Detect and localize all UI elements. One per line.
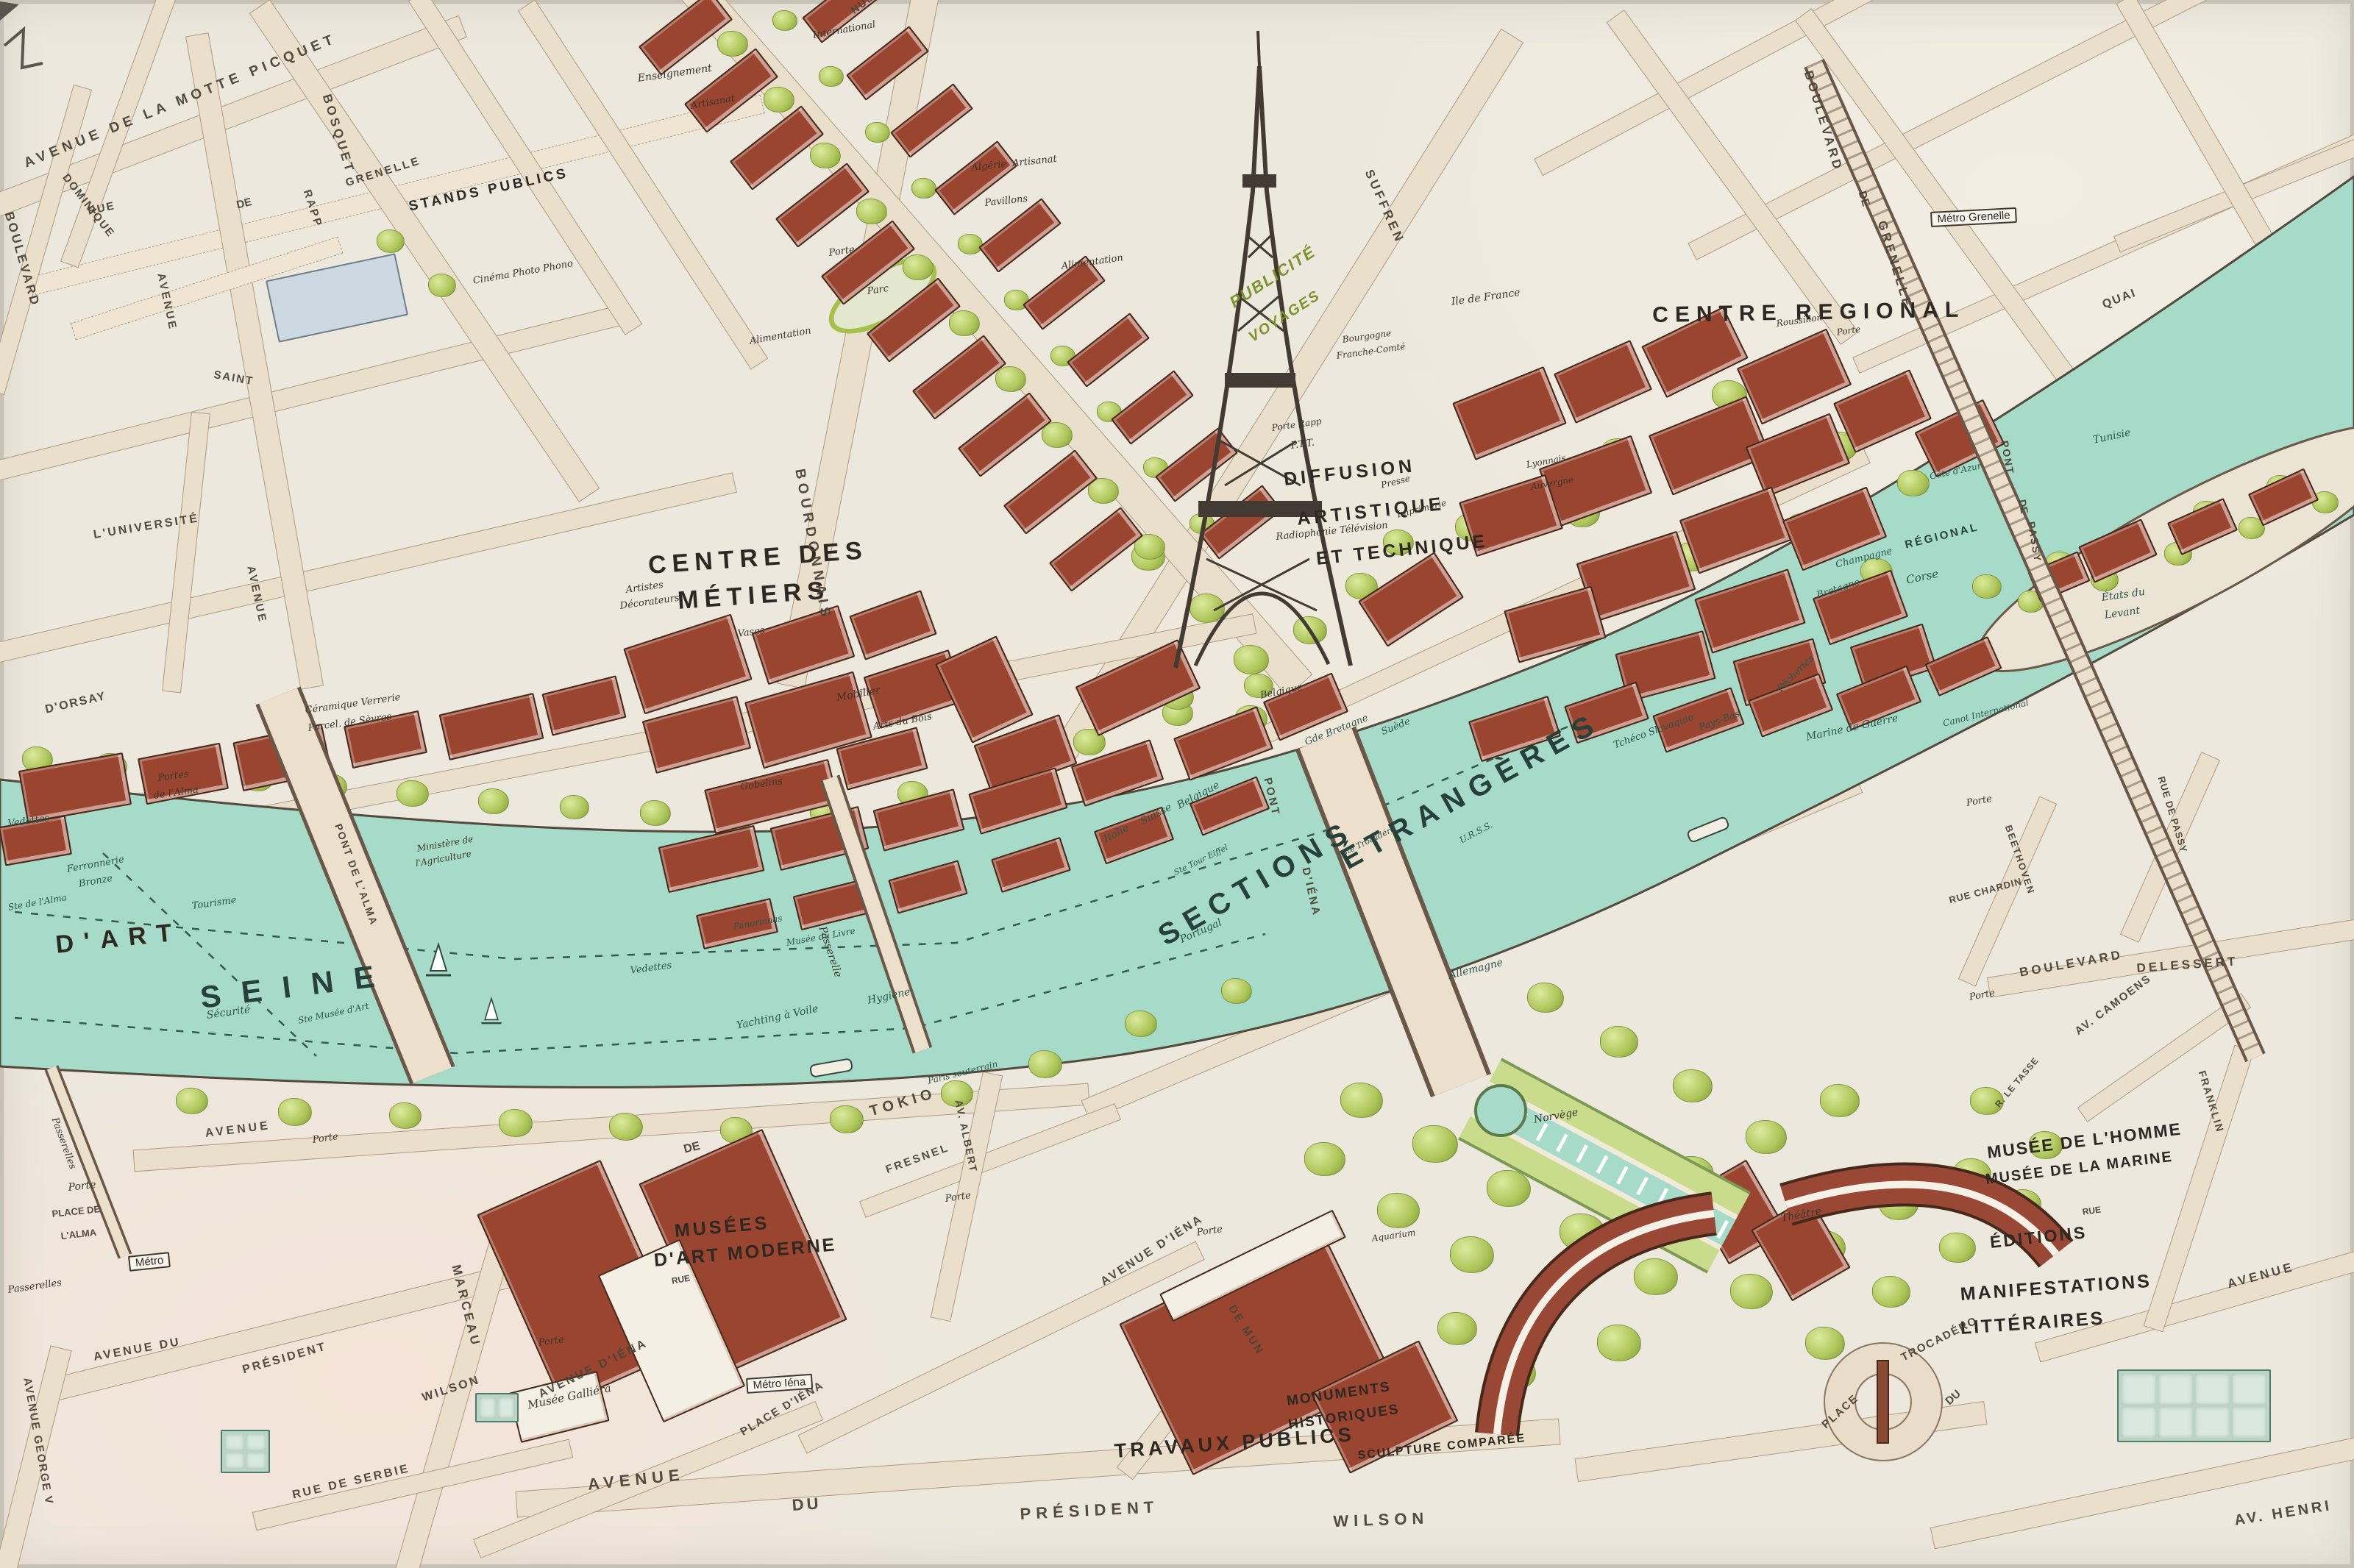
- legend-cell: [2122, 1407, 2156, 1438]
- legend-cell: [2195, 1374, 2230, 1405]
- legend-grid: [475, 1393, 519, 1422]
- legend-cell: [2158, 1407, 2193, 1438]
- legend-cell: [2232, 1374, 2266, 1405]
- legend-cell: [246, 1453, 266, 1469]
- paris-exposition-1937-map: CENTRE DESMÉTIERSCENTRE REGIONALSECTIONS…: [0, 0, 2354, 1568]
- legend-cell: [480, 1397, 496, 1418]
- legend-cell: [246, 1434, 266, 1450]
- legend-cell: [2195, 1407, 2230, 1438]
- legend-cell: [225, 1453, 244, 1469]
- legend-cell: [2158, 1374, 2193, 1405]
- legend-cell: [2232, 1407, 2266, 1438]
- legend-grid: [221, 1430, 270, 1473]
- legend-cell: [225, 1434, 244, 1450]
- legend-layer: [0, 0, 2354, 1568]
- legend-grid: [2117, 1369, 2271, 1442]
- legend-cell: [2122, 1374, 2156, 1405]
- legend-cell: [498, 1397, 514, 1418]
